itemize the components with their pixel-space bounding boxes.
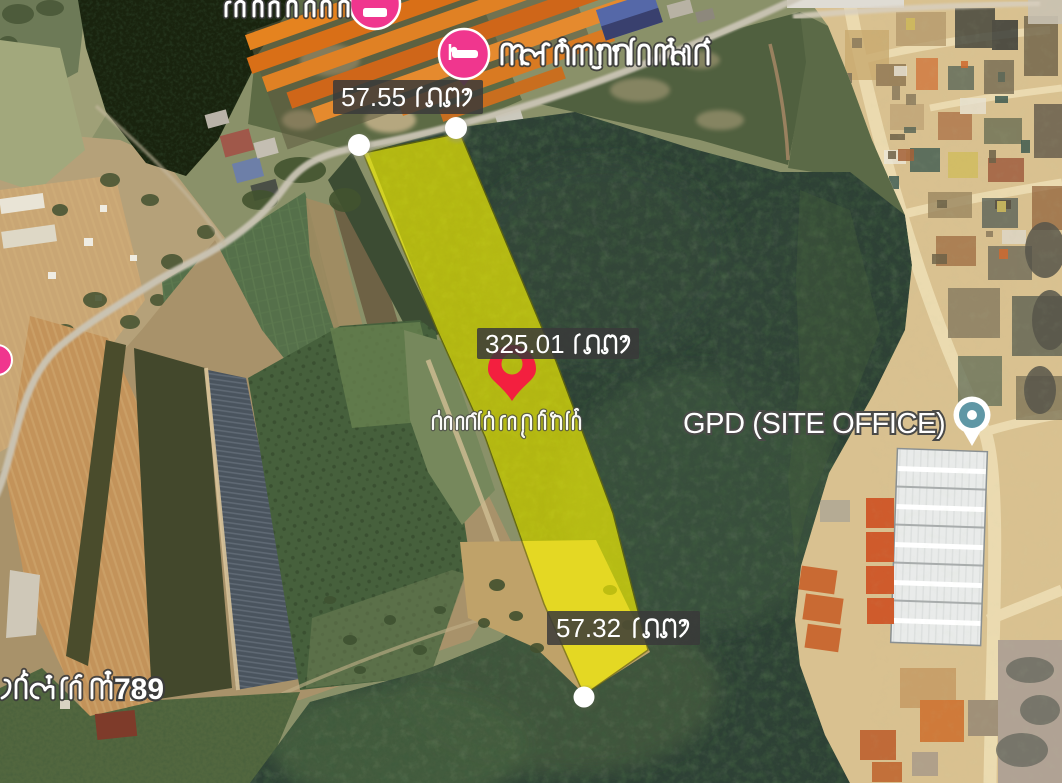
svg-text:GPD (SITE OFFICE): GPD (SITE OFFICE) [683, 408, 945, 440]
svg-text:789: 789 [114, 673, 164, 706]
svg-text:325.01: 325.01 [485, 329, 565, 359]
svg-text:57.55: 57.55 [341, 82, 406, 112]
svg-text:57.32: 57.32 [556, 613, 621, 643]
